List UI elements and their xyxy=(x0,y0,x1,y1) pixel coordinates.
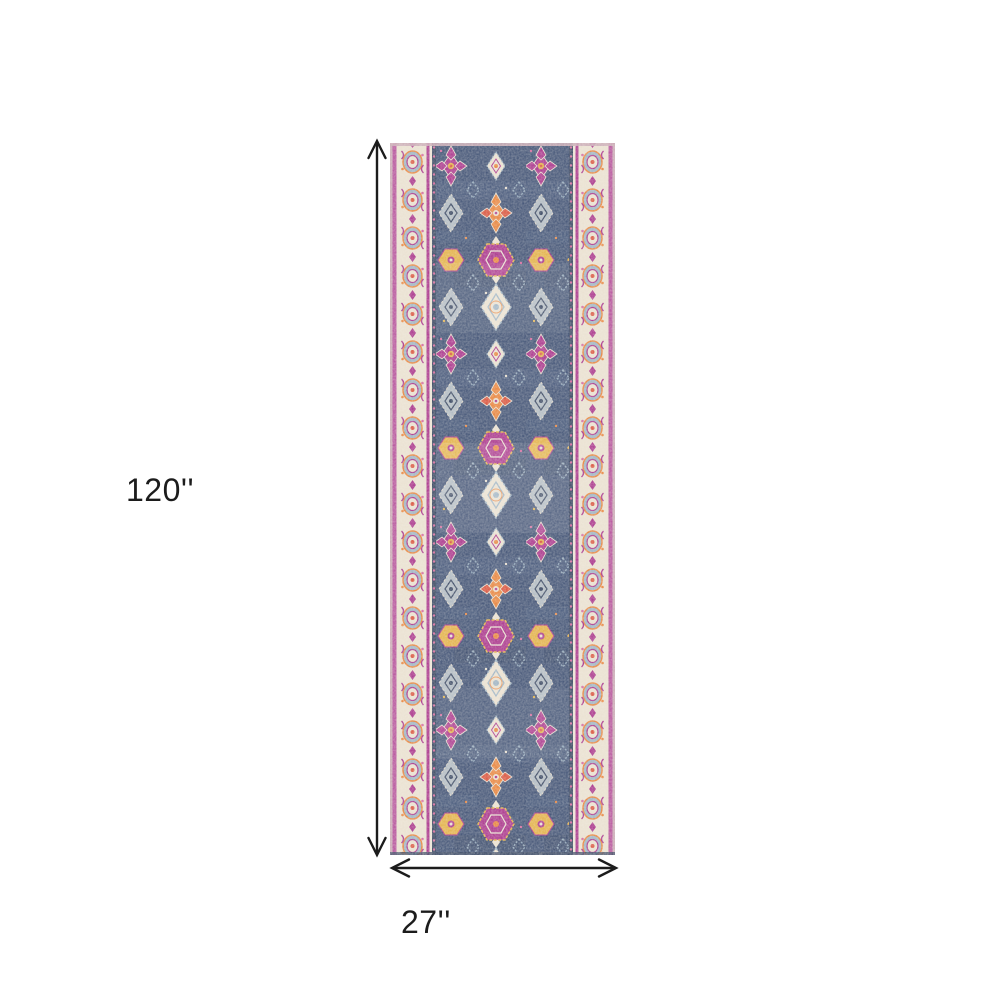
product-dimension-diagram: 120'' 27'' xyxy=(0,0,1000,1000)
distress-texture xyxy=(390,143,615,855)
height-dimension-label: 120'' xyxy=(126,474,194,506)
width-dimension-label: 27'' xyxy=(401,906,451,938)
rug-svg xyxy=(390,143,615,855)
rug-image xyxy=(390,143,615,855)
height-dimension-arrow xyxy=(369,141,386,855)
width-dimension-arrow xyxy=(392,860,616,877)
